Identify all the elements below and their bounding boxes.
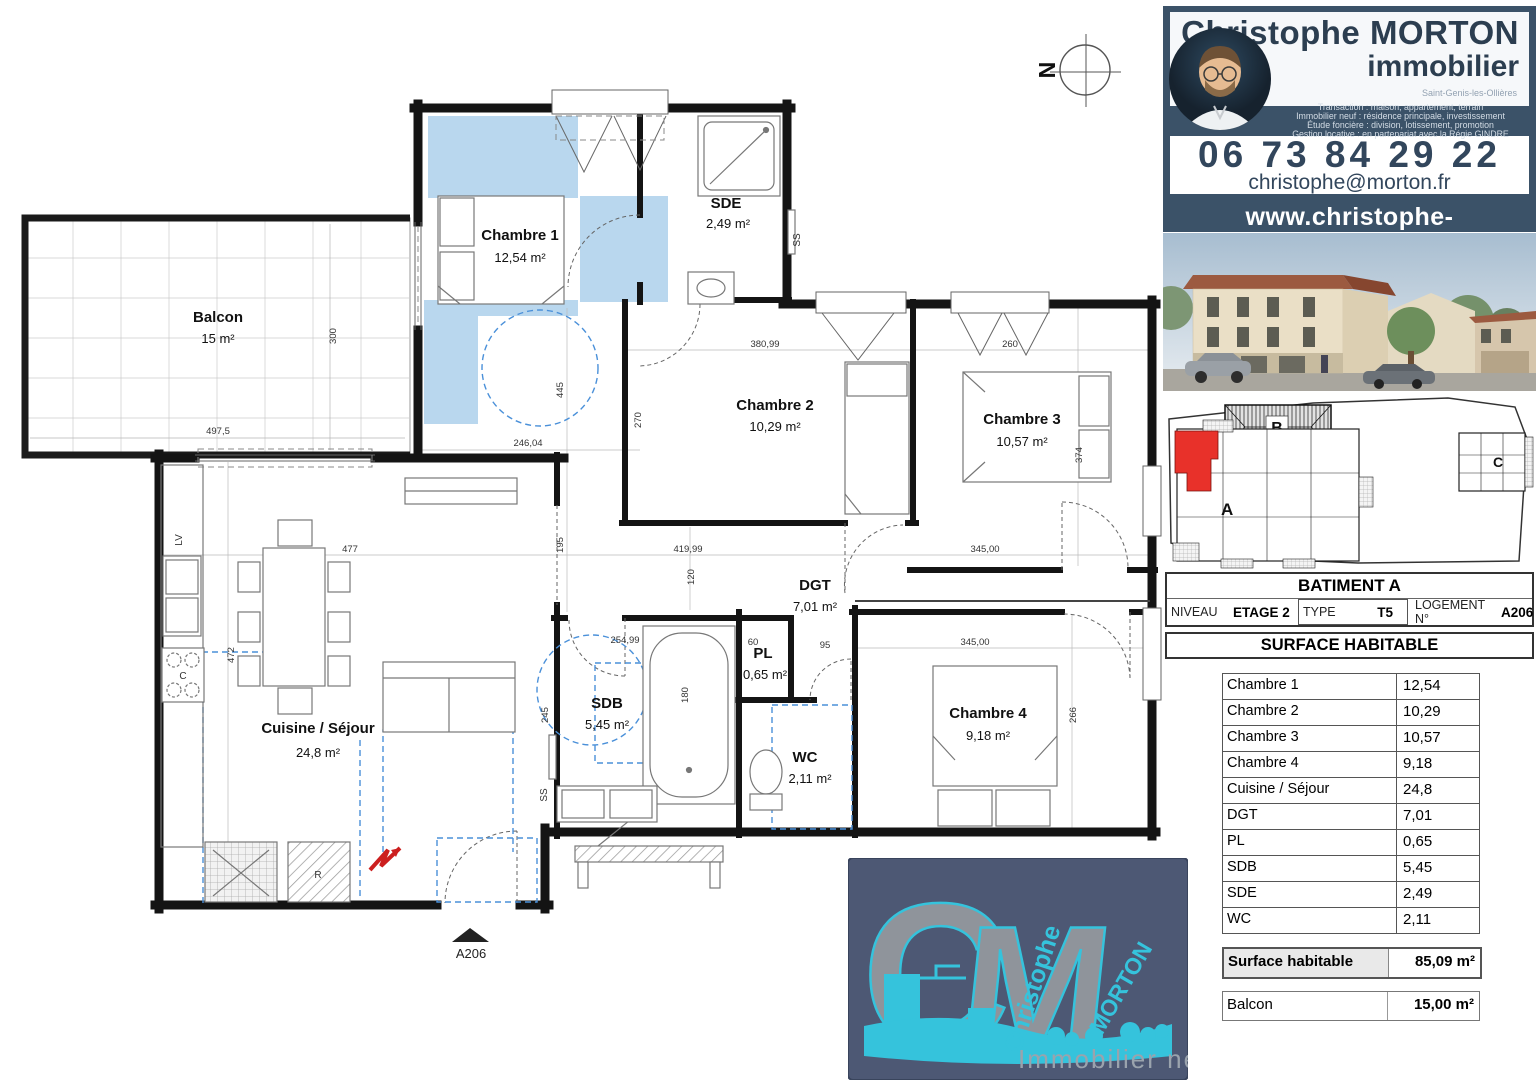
svg-text:120: 120 — [686, 569, 697, 585]
row-label: SDB — [1223, 856, 1396, 881]
balcon-value: 15,00 m² — [1387, 992, 1479, 1020]
row-value: 2,11 — [1396, 908, 1479, 933]
svg-text:60: 60 — [748, 637, 759, 648]
svg-text:SS: SS — [539, 788, 550, 802]
agency-logo: C M Christophe MORTON Immobilier neuf — [848, 858, 1188, 1080]
svg-text:445: 445 — [555, 382, 566, 398]
room-label: Cuisine / Séjour — [261, 720, 375, 737]
table-row: WC2,11 — [1223, 908, 1479, 933]
building-a-label: A — [1221, 500, 1233, 519]
svg-text:270: 270 — [633, 412, 644, 428]
entrance-label: A206 — [456, 946, 486, 961]
niveau-value: ETAGE 2 — [1233, 605, 1295, 620]
row-label: SDE — [1223, 882, 1396, 907]
room-label: Balcon — [193, 309, 243, 326]
logement-label: LOGEMENT N° — [1411, 598, 1501, 626]
row-label: Chambre 2 — [1223, 700, 1396, 725]
room-area: 9,18 m² — [966, 728, 1011, 743]
svg-text:472: 472 — [226, 647, 237, 663]
room-area: 2,11 m² — [788, 771, 832, 786]
svg-text:345,00: 345,00 — [960, 637, 989, 648]
north-label: N — [1034, 62, 1060, 79]
svg-text:345,00: 345,00 — [970, 544, 999, 555]
svg-text:477: 477 — [342, 544, 358, 555]
building-rendering — [1163, 233, 1536, 391]
room-area: 24,8 m² — [296, 745, 341, 760]
surface-title: SURFACE HABITABLE — [1165, 632, 1534, 659]
svg-text:R: R — [314, 870, 321, 881]
row-value: 10,57 — [1396, 726, 1479, 751]
svg-text:419,99: 419,99 — [673, 544, 702, 555]
room-area: 10,57 m² — [996, 434, 1048, 449]
table-row: Chambre 210,29 — [1223, 700, 1479, 726]
table-row: Chambre 112,54 — [1223, 674, 1479, 700]
svg-text:C: C — [179, 671, 186, 682]
svg-text:254,99: 254,99 — [610, 635, 639, 646]
row-label: Chambre 3 — [1223, 726, 1396, 751]
row-value: 9,18 — [1396, 752, 1479, 777]
dim: 300 — [328, 328, 339, 344]
agency-services: Transaction : maison, appartement, terra… — [1275, 103, 1526, 139]
svg-text:245: 245 — [540, 707, 551, 723]
total-label: Surface habitable — [1224, 949, 1388, 977]
room-label: WC — [793, 749, 818, 766]
table-row: SDE2,49 — [1223, 882, 1479, 908]
row-value: 12,54 — [1396, 674, 1479, 699]
svg-text:SS: SS — [792, 233, 803, 247]
row-label: DGT — [1223, 804, 1396, 829]
room-label: Chambre 4 — [949, 705, 1027, 722]
batiment-row: NIVEAU ETAGE 2 TYPE T5 LOGEMENT N° A206 — [1167, 599, 1532, 625]
svg-text:95: 95 — [820, 640, 831, 651]
row-value: 2,49 — [1396, 882, 1479, 907]
room-area: 2,49 m² — [706, 216, 751, 231]
plan-sheet: Balcon 15 m² 497,5 300 — [0, 0, 1536, 1080]
svg-text:180: 180 — [680, 687, 691, 703]
contact-band: 06 73 84 29 22 christophe@morton.fr — [1170, 136, 1529, 194]
room-area: 12,54 m² — [494, 250, 546, 265]
row-value: 10,29 — [1396, 700, 1479, 725]
room-area: 0,65 m² — [743, 667, 788, 682]
table-row: Chambre 49,18 — [1223, 752, 1479, 778]
room-balcon: Balcon 15 m² 497,5 300 — [25, 218, 410, 455]
email-address: christophe@morton.fr — [1170, 174, 1529, 192]
agent-photo — [1169, 28, 1271, 130]
room-label: SDE — [711, 195, 742, 212]
room-label: Chambre 3 — [983, 411, 1061, 428]
room-label: Chambre 1 — [481, 227, 559, 244]
entrance-marker: A206 — [452, 928, 489, 961]
balcon-row: Balcon 15,00 m² — [1222, 991, 1480, 1021]
type-label: TYPE — [1299, 605, 1377, 619]
building-c-label: C — [1493, 454, 1503, 470]
balcon-label: Balcon — [1223, 992, 1387, 1020]
surface-table: Chambre 112,54 Chambre 210,29 Chambre 31… — [1222, 673, 1480, 934]
type-value: T5 — [1377, 605, 1407, 620]
svg-text:LV: LV — [174, 534, 185, 546]
logo-tagline: Immobilier neuf — [1018, 1044, 1188, 1074]
room-label: Chambre 2 — [736, 397, 814, 414]
north-compass-icon: N — [1034, 34, 1121, 107]
row-label: Chambre 4 — [1223, 752, 1396, 777]
room-area: 7,01 m² — [793, 599, 838, 614]
row-value: 24,8 — [1396, 778, 1479, 803]
room-label: SDB — [591, 695, 623, 712]
svg-text:380,99: 380,99 — [750, 339, 779, 350]
table-row: Chambre 310,57 — [1223, 726, 1479, 752]
batiment-info-box: BATIMENT A NIVEAU ETAGE 2 TYPE T5 LOGEME… — [1165, 572, 1534, 627]
svg-text:260: 260 — [1002, 339, 1018, 350]
table-row: DGT7,01 — [1223, 804, 1479, 830]
svg-text:246,04: 246,04 — [513, 438, 542, 449]
room-area: 5,45 m² — [585, 717, 630, 732]
agency-location: Saint-Genis-les-Ollières — [1422, 88, 1517, 98]
table-row: Cuisine / Séjour24,8 — [1223, 778, 1479, 804]
svg-text:195: 195 — [555, 537, 566, 553]
table-row: SDB5,45 — [1223, 856, 1479, 882]
surface-total-row: Surface habitable 85,09 m² — [1222, 947, 1482, 979]
niveau-label: NIVEAU — [1167, 605, 1233, 619]
row-value: 5,45 — [1396, 856, 1479, 881]
total-value: 85,09 m² — [1388, 949, 1480, 977]
row-label: Chambre 1 — [1223, 674, 1396, 699]
logement-value: A206 — [1501, 605, 1533, 620]
table-row: PL0,65 — [1223, 830, 1479, 856]
agency-subtitle: immobilier — [1367, 50, 1519, 84]
svg-text:266: 266 — [1068, 707, 1079, 723]
room-area: 10,29 m² — [749, 419, 801, 434]
row-value: 7,01 — [1396, 804, 1479, 829]
svg-text:374: 374 — [1074, 447, 1085, 463]
row-label: WC — [1223, 908, 1396, 933]
room-label: DGT — [799, 577, 831, 594]
room-area: 15 m² — [201, 331, 235, 346]
row-label: PL — [1223, 830, 1396, 855]
tree — [1387, 307, 1435, 355]
person — [1321, 355, 1328, 373]
row-value: 0,65 — [1396, 830, 1479, 855]
site-plan: B A C — [1163, 393, 1536, 569]
row-label: Cuisine / Séjour — [1223, 778, 1396, 803]
batiment-title: BATIMENT A — [1167, 574, 1532, 599]
service-line: Gestion locative : en partenariat avec l… — [1275, 130, 1526, 139]
type-cell: TYPE T5 — [1298, 599, 1408, 625]
agency-card: Christophe MORTON immobilier Saint-Genis… — [1163, 6, 1536, 232]
dim: 497,5 — [206, 426, 230, 437]
phone-number: 06 73 84 29 22 — [1170, 136, 1529, 174]
